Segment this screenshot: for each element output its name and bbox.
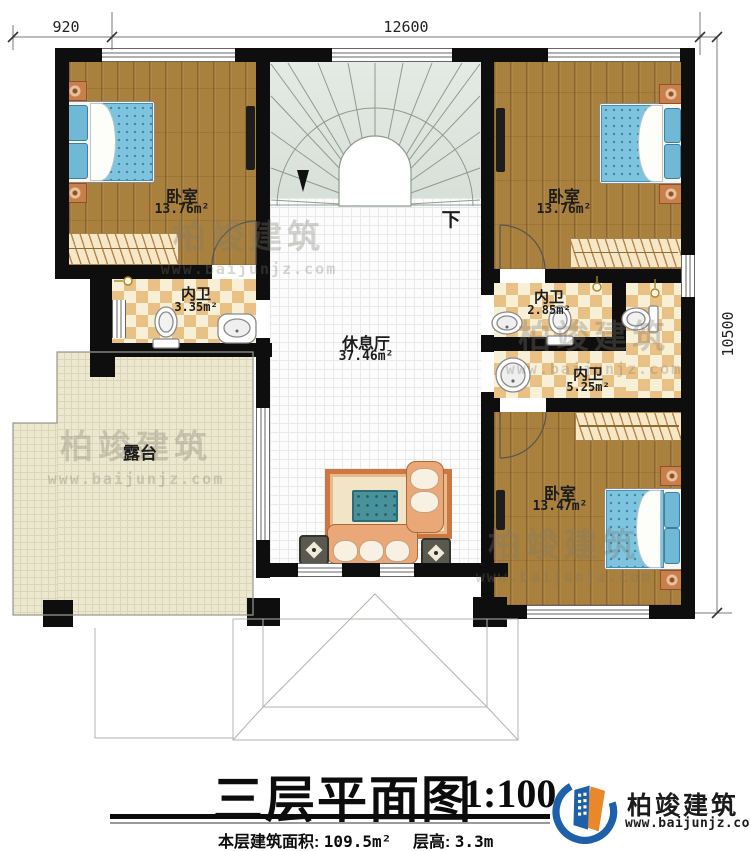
room-area-bedroom-top-left: 13.76m² <box>155 202 210 217</box>
drawing-scale: 1:100 <box>463 770 556 817</box>
room-label-terrace: 露台 <box>123 439 157 464</box>
stair-arch <box>339 136 411 206</box>
logo-tower-blue <box>574 786 590 830</box>
floor-height-value: 3.3m <box>455 832 494 851</box>
linework-overlay <box>0 0 750 851</box>
title-underline <box>110 814 550 819</box>
terrace-outline <box>13 352 253 615</box>
brand-url: www.baijunjz.com <box>625 816 750 831</box>
room-area-hall: 37.46m² <box>339 349 394 364</box>
floor-area-value: 109.5m² <box>324 832 391 851</box>
floor-plan: 柏竣建筑 www.baijunjz.com 柏竣建筑 www.baijunjz.… <box>0 0 750 851</box>
floor-height-info: 层高: 3.3m <box>413 828 493 851</box>
floor-height-label: 层高: <box>413 834 450 851</box>
floor-area-info: 本层建筑面积: 109.5m² <box>218 828 391 851</box>
toilet-icon <box>622 306 658 332</box>
sink-icon <box>492 312 522 334</box>
room-area-bathroom-large: 5.25m² <box>566 380 609 394</box>
brand-logo-icon <box>551 772 623 844</box>
title-underline-thin <box>110 822 550 824</box>
stairs-down-label: 下 <box>441 205 460 232</box>
round-basin-icon <box>496 358 530 392</box>
roof-outline <box>95 594 518 740</box>
room-area-bedroom-bottom-right: 13.47m² <box>533 499 588 514</box>
room-area-bedroom-top-right: 13.76m² <box>537 202 592 217</box>
dim-terrace-width: 920 <box>52 18 79 36</box>
sink-icon <box>218 314 256 343</box>
room-area-bathroom-small: 2.85m² <box>527 303 570 317</box>
floor-area-label: 本层建筑面积: <box>218 834 319 851</box>
room-area-bathroom-left: 3.35m² <box>174 300 217 314</box>
dim-main-width: 12600 <box>383 18 428 36</box>
dim-total-depth: 10500 <box>719 311 737 356</box>
